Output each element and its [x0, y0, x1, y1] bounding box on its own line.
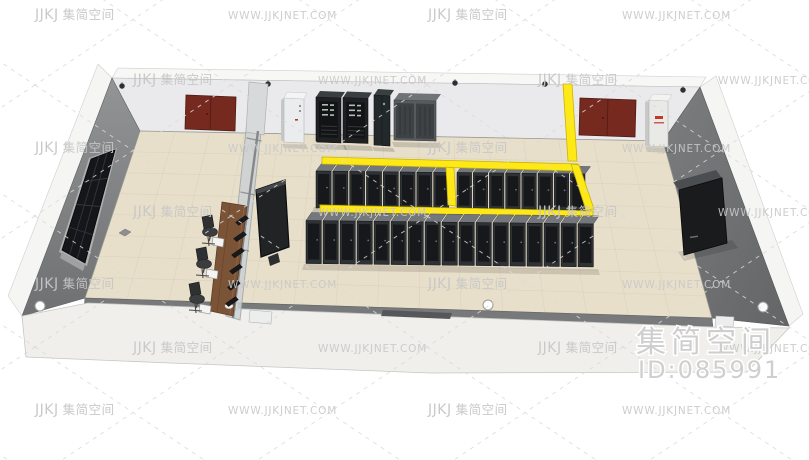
watermark-url: WWW.JJKJNET.COM: [228, 143, 337, 155]
watermark-url: WWW.JJKJNET.COM: [318, 207, 427, 219]
watermark-brand: JJKJ集简空间: [537, 340, 618, 356]
watermark-url: WWW.JJKJNET.COM: [622, 143, 731, 155]
model-preview-image: JJKJ集简空间WWW.JJKJNET.COMJJKJ集简空间WWW.JJKJN…: [0, 0, 809, 460]
watermark-url: WWW.JJKJNET.COM: [622, 10, 731, 22]
watermark-url: WWW.JJKJNET.COM: [718, 207, 809, 219]
watermark-url: WWW.JJKJNET.COM: [718, 75, 809, 87]
watermark-diagonal-lines: [0, 0, 809, 460]
watermark-brand: JJKJ集简空间: [132, 340, 213, 356]
watermark-brand: JJKJ集简空间: [427, 7, 508, 23]
watermark-brand: JJKJ集简空间: [427, 276, 508, 292]
watermark-url: WWW.JJKJNET.COM: [318, 343, 427, 355]
watermark-brand: JJKJ集简空间: [537, 204, 618, 220]
badge-model-id: ID:085991: [638, 356, 781, 384]
watermark-url: WWW.JJKJNET.COM: [228, 10, 337, 22]
watermark-url: WWW.JJKJNET.COM: [622, 405, 731, 417]
watermark-url: WWW.JJKJNET.COM: [622, 279, 731, 291]
watermark-url: WWW.JJKJNET.COM: [228, 405, 337, 417]
watermark-url: WWW.JJKJNET.COM: [228, 279, 337, 291]
watermark-url: WWW.JJKJNET.COM: [318, 75, 427, 87]
watermark-brand: JJKJ集简空间: [132, 72, 213, 88]
watermark-brand: JJKJ集简空间: [34, 140, 115, 156]
watermark-brand: JJKJ集简空间: [427, 402, 508, 418]
badge-site-name: 集简空间: [636, 325, 776, 360]
watermark-brand: JJKJ集简空间: [132, 204, 213, 220]
site-badge: 集简空间 ID:085991: [636, 325, 781, 384]
watermark-brand: JJKJ集简空间: [34, 402, 115, 418]
watermark-brand: JJKJ集简空间: [537, 72, 618, 88]
watermark-brand: JJKJ集简空间: [427, 140, 508, 156]
watermark-brand: JJKJ集简空间: [34, 276, 115, 292]
scene-canvas: JJKJ集简空间WWW.JJKJNET.COMJJKJ集简空间WWW.JJKJN…: [0, 0, 809, 460]
watermark-brand: JJKJ集简空间: [34, 7, 115, 23]
